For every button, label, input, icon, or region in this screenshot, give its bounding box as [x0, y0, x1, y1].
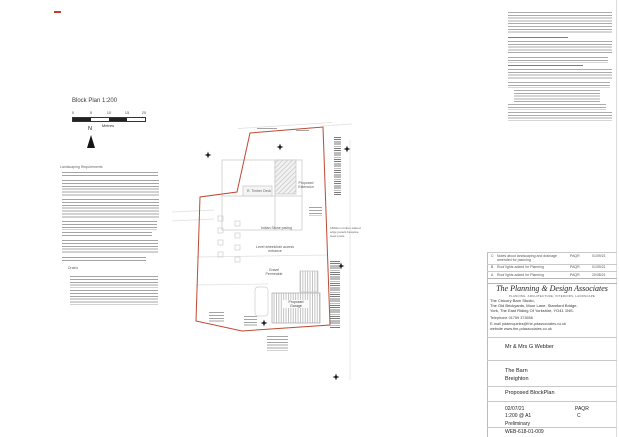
plan-top-label-1 [257, 128, 277, 130]
revtable-line-3 [487, 278, 617, 279]
plan-left-note-2 [244, 316, 257, 327]
drawing-number: WEB-618-01-009 [505, 429, 544, 435]
project-name-line1: The Barn [505, 368, 528, 374]
dwgtitle-bottom-line [487, 401, 617, 402]
notes-bullet-list [514, 90, 600, 102]
notes-heading-2 [508, 65, 583, 66]
status-bottom-line [487, 427, 617, 428]
label-gravel-permeable: GravelPermeable [262, 268, 286, 276]
parking-bays [218, 216, 240, 262]
notes-para-5 [508, 82, 610, 88]
rev-row-a-by: PAQR [570, 273, 580, 277]
label-proposed-garage: ProposedGarage [283, 300, 309, 308]
label-indian-stone: Indian Stone paving [261, 226, 292, 230]
rev-row-b-desc: Roof lights added for Planning [497, 265, 544, 269]
notes-para-6 [508, 104, 606, 110]
company-address-3: York, The East Riding Of Yorkshire, YO41… [490, 308, 574, 313]
sheet-right-edge [616, 0, 617, 437]
rev-row-b-letter: B [491, 265, 493, 269]
plan-left-note-1 [209, 312, 224, 322]
company-email: E-mail pdaenquiries@the-pdassociates.co.… [490, 322, 566, 326]
rev-row-c-date: 01/09/21 [592, 254, 606, 258]
company-name: The Planning & Design Associates [487, 284, 617, 293]
plan-vertical-note-2 [330, 261, 340, 329]
drawing-title: Proposed BlockPlan [505, 390, 555, 396]
notes-heading-1 [508, 37, 568, 38]
drawing-date: 02/07/21 [505, 406, 524, 412]
titleblock-left-border [487, 252, 488, 437]
company-bottom-line [487, 337, 617, 338]
rev-row-a-letter: A [491, 273, 493, 277]
drawing-status: Preliminary [505, 421, 530, 427]
client-name: Mr & Mrs G Webber [505, 344, 554, 350]
plan-top-label-2 [296, 130, 309, 132]
rev-row-b-date: 01/09/21 [592, 265, 606, 269]
revtable-top-line [487, 252, 617, 253]
drawn-by: PAQR [575, 406, 589, 412]
project-bottom-line [487, 386, 617, 387]
rev-row-a-date: 20/08/21 [592, 273, 606, 277]
rev-row-c-letter: C [491, 254, 494, 258]
client-bottom-line [487, 360, 617, 361]
rev-row-c-desc: Notes about landscaping and drainage ame… [497, 254, 563, 262]
notes-para-4 [508, 69, 612, 80]
rev-row-c-by: PAQR [570, 254, 580, 258]
rooflight-note [309, 207, 322, 216]
drawing-sheet: Block Plan 1:200 0 5 10 15 20 Metres N L… [0, 0, 619, 437]
notes-para-2 [508, 41, 612, 55]
company-website: website www.the-pdassociates.co.uk [490, 327, 552, 331]
revtable-line-2 [487, 271, 617, 272]
label-proposed-extension: ProposedExtension [294, 181, 318, 189]
company-telephone: Telephone 01759 373656 [490, 316, 533, 320]
rev-row-b-by: PAQR [570, 265, 580, 269]
project-name-line2: Breighton [505, 376, 529, 382]
drawing-scale: 1:200 @ A1 [505, 413, 531, 419]
plan-vertical-note-1 [334, 137, 341, 195]
fence-note: 1800mm timber slatted edge panels bespok… [330, 227, 361, 238]
plan-bottom-note [267, 336, 288, 351]
notes-para-1 [508, 12, 612, 34]
revision-letter: C [577, 413, 581, 419]
notes-para-7 [508, 112, 612, 121]
rev-row-a-desc: Roof lights added for Planning [497, 273, 544, 277]
notes-para-3 [508, 57, 608, 63]
label-wheelchair-access: Level wheelchair accessentrance [253, 245, 297, 253]
label-timber-deck: R. Timber Deck [247, 189, 271, 193]
